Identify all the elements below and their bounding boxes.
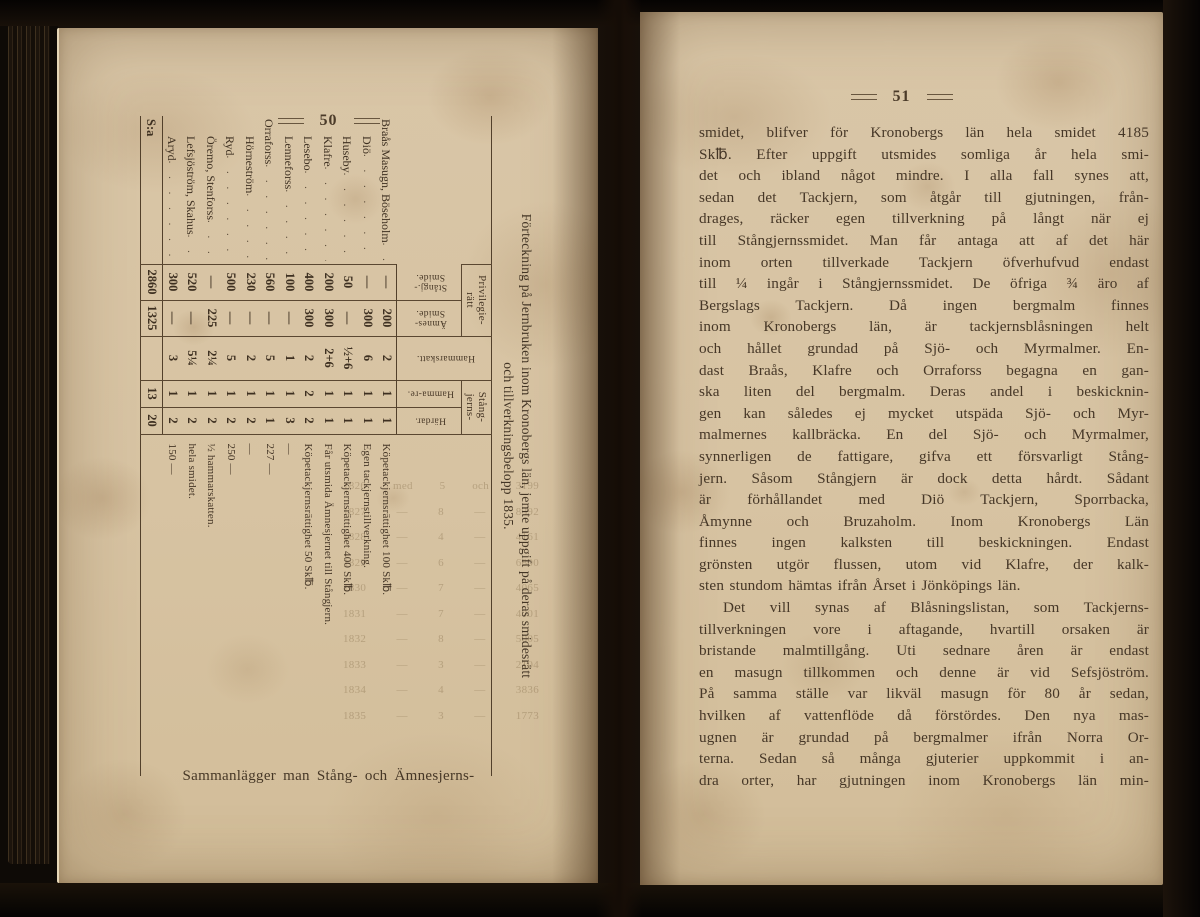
cell-skatt [141,336,163,380]
cell-note: Köpetackjernsrättighet 400 Sk℔. [338,434,358,776]
cell-hammare: 1 [163,380,183,407]
cell-note: 250 — [221,434,241,776]
text-line: det och ibland något mindre. I alla fall… [699,165,1149,187]
cell-hardar: 2 [221,407,241,434]
cell-stangj: 400 [299,264,319,300]
cell-hardar: 1 [358,407,378,434]
table-row: Klafre2003002+611Får utsmida Ämnesjernet… [319,116,339,776]
cell-note: Köpetackjernsrättighet 100 Sk℔. [377,434,397,776]
dot-leader [185,235,198,261]
cell-skatt: 5 [221,336,241,380]
cell-hardar: 1 [377,407,397,434]
cell-note: ½ hammarskatten. [202,434,222,776]
text-line: dra orter, har gjutningen inom Kronoberg… [699,770,1149,792]
dot-leader [283,189,296,260]
dash-ornament-icon [851,94,877,100]
cell-hardar: 2 [182,407,202,434]
cell-note: Köpetackjernsrättighet 50 Sk℔. [299,434,319,776]
dash-ornament-icon [927,94,953,100]
right-page: 51 smidet, blifver för Kronobergs län he… [640,12,1163,885]
body-text: smidet, blifver för Kronobergs län hela … [699,122,1149,791]
text-line: På samma ställe var likväl masugn för 80… [699,683,1149,705]
cell-hardar: 2 [163,407,183,434]
cell-hammare: 1 [260,380,280,407]
dot-leader [322,167,335,261]
privilege-group-header: Privilegie-rätt [462,264,492,336]
stangjerns-group-header: Stång-jerns- [462,380,492,434]
cell-note [141,434,163,776]
cell-name: Huseby [338,116,358,264]
cell-hammare: 1 [338,380,358,407]
table-row: Lesebo400300222Köpetackjernsrättighet 50… [299,116,319,776]
cell-note: 227 — [260,434,280,776]
text-line: inom Kronobergs län, är tackjernsblåsnin… [699,316,1149,338]
text-line: Sk℔. Efter uppgift utsmides somliga år h… [699,144,1149,166]
cell-hardar: 1 [338,407,358,434]
dot-leader [302,171,315,261]
table-row: Lenneforss100—113— [280,116,300,776]
scan-background-right [1163,0,1200,917]
cell-hardar: 20 [141,407,163,434]
cell-skatt: ½+6 [338,336,358,380]
cell-amnes: — [163,300,183,336]
cell-hammare: 1 [319,380,339,407]
cell-amnes: — [221,300,241,336]
text-line: inom orten tillverkade Tackjern öfverhuf… [699,252,1149,274]
cell-hardar: 2 [241,407,261,434]
cell-skatt: 2 [377,336,397,380]
table-title-line2: och tillverkningsbelopp 1835. [499,116,517,776]
cell-amnes: — [260,300,280,336]
cell-hammare: 1 [202,380,222,407]
dot-leader [244,193,257,260]
text-line: ugnen är grundad på bergmalmer ifrån Nor… [699,727,1149,749]
text-line: sedan det Tackjern, som åtgår till gjutn… [699,187,1149,209]
text-line: Åmynne och Bruzaholm. Inom Kronobergs Lä… [699,511,1149,533]
table-row: Orraforss560—511227 — [260,116,280,776]
cell-hammare: 13 [141,380,163,407]
cell-name: Öremo, Stenforss [202,116,222,264]
table-row: Diö—300611Egen tackjernstillverkning. [358,116,378,776]
cell-stangj: 520 [182,264,202,300]
cell-hammare: 1 [182,380,202,407]
cell-hammare: 1 [358,380,378,407]
text-line: ska liten del bergmalm. Deras andel i be… [699,381,1149,403]
table-row: Hörneström230—212— [241,116,261,776]
cell-skatt: 6 [358,336,378,380]
cell-hammare: 1 [221,380,241,407]
iron-works-table-inner: Förteckning på Jernbruken inom Kronoberg… [133,116,537,776]
dot-leader [166,161,179,261]
cell-name: Klafre [319,116,339,264]
name-column-header [397,116,492,264]
cell-skatt: 5¼ [182,336,202,380]
dot-leader [361,154,374,261]
cell-skatt: 1 [280,336,300,380]
text-line: synnerligen de fattigare, gifva ett förs… [699,446,1149,468]
paragraph-2: Det vill synas af Blåsningslistan, som T… [699,597,1149,791]
cell-amnes: 225 [202,300,222,336]
cell-hardar: 2 [299,407,319,434]
cell-skatt: 2 [299,336,319,380]
cell-stangj: — [358,264,378,300]
cell-amnes: 1325 [141,300,163,336]
cell-note: 150 — [163,434,183,776]
cell-stangj: — [377,264,397,300]
cell-name: Braås Masugn, Böseholm [377,116,397,264]
cell-name: Hörneström [241,116,261,264]
text-line: en masugn tillkommen och denne är vid Se… [699,662,1149,684]
amnes-smide-header: Ämnes-Smide. [397,300,462,336]
dot-leader [224,156,237,261]
cell-amnes: — [241,300,261,336]
text-line: terna. Sedan så många gjuterier uppkommi… [699,748,1149,770]
text-line: och hållet grundad på Sjö- och Myrmalmer… [699,338,1149,360]
cell-stangj: — [202,264,222,300]
cell-skatt: 2 [241,336,261,380]
cell-note: Får utsmida Ämnesjernet till Stångjern. [319,434,339,776]
cell-note: Egen tackjernstillverkning. [358,434,378,776]
table-row: Aryd300—312150 — [163,116,183,776]
cell-hammare: 2 [299,380,319,407]
hammarskatt-column-header: Hammarskatt. [397,336,492,380]
cell-amnes: — [338,300,358,336]
book-fore-edge [0,0,58,917]
dot-leader [380,243,393,261]
text-line: Bergslags Tackjern. Då ingen bergmalm fi… [699,295,1149,317]
stangj-smide-header: Stångj.-Smide. [397,264,462,300]
hardar-header: Härdar. [397,407,462,434]
cell-hammare: 1 [280,380,300,407]
book-gutter [596,0,642,917]
paragraph-1: smidet, blifver för Kronobergs län hela … [699,122,1149,597]
iron-works-table: Privilegie-rätt Hammarskatt. Stång-jerns… [140,116,492,776]
cell-name: Lesebo [299,116,319,264]
table-row: Öremo, Stenforss—2252¼12½ hammarskatten. [202,116,222,776]
cell-hammare: 1 [241,380,261,407]
cell-amnes: 300 [299,300,319,336]
cell-amnes: — [182,300,202,336]
text-line: smidet, blifver för Kronobergs län hela … [699,122,1149,144]
table-row: Huseby50—½+611Köpetackjernsrättighet 400… [338,116,358,776]
text-line: Det vill synas af Blåsningslistan, som T… [699,597,1149,619]
table-title: Förteckning på Jernbruken inom Kronoberg… [499,116,535,776]
cell-note: hela smidet. [182,434,202,776]
cell-stangj: 500 [221,264,241,300]
dot-leader [263,164,276,260]
text-line: är förhållandet med Diö Tackjern, Sporrb… [699,489,1149,511]
cell-amnes: 200 [377,300,397,336]
cell-skatt: 2+6 [319,336,339,380]
table-row: Lefsjöström, Skahus520—5¼12hela smidet. [182,116,202,776]
text-line: gen kan således ej mycket utspäda Sjö- o… [699,403,1149,425]
cell-amnes: 300 [358,300,378,336]
cell-stangj: 100 [280,264,300,300]
cell-name: Ryd [221,116,241,264]
text-line: bristande malmtillgång. Uti sednare åren… [699,640,1149,662]
text-line: drages, räcker egen tillverkning på lång… [699,208,1149,230]
text-line: grönsten utgör flussen, utom vid Klafre,… [699,554,1149,576]
table-row: Ryd500—512250 — [221,116,241,776]
cell-name: Lefsjöström, Skahus [182,116,202,264]
text-line: malmernes kallbräcka. En del Sjö- och My… [699,424,1149,446]
dot-leader [205,220,218,261]
right-page-header: 51 [640,88,1163,106]
cell-name: S:a [141,116,163,264]
cell-name: Lenneforss [280,116,300,264]
text-line: till ¼ ingår i Stångjernssmidet. De öfri… [699,273,1149,295]
text-line: hvilken af vattenflöde då förstördes. De… [699,705,1149,727]
cell-stangj: 560 [260,264,280,300]
text-line: till Stångjernssmidet. Man får antaga at… [699,230,1149,252]
table-row: Braås Masugn, Böseholm—200211Köpetackjer… [377,116,397,776]
rotated-table-block: Förteckning på Jernbruken inom Kronoberg… [133,116,537,776]
cell-hardar: 1 [260,407,280,434]
text-line: sten stundom hämtas ifrån Årset i Jönköp… [699,575,1149,597]
cell-note: — [241,434,261,776]
notes-column-header [397,434,492,776]
text-line: jern. Såsom Stångjern är dock detta hård… [699,468,1149,490]
cell-stangj: 200 [319,264,339,300]
page-number: 51 [893,88,911,106]
left-page: 50 1826 med 5 och 31991827 — 8 — 8392182… [57,28,598,883]
cell-skatt: 2¼ [202,336,222,380]
cell-amnes: — [280,300,300,336]
cell-name: Orraforss [260,116,280,264]
cell-skatt: 5 [260,336,280,380]
cell-amnes: 300 [319,300,339,336]
book-scan: 50 1826 med 5 och 31991827 — 8 — 8392182… [0,0,1200,917]
text-line: finnes ingen kalksten till beskickningen… [699,532,1149,554]
table-title-line1: Förteckning på Jernbruken inom Kronoberg… [517,116,535,776]
cell-stangj: 230 [241,264,261,300]
cell-hammare: 1 [377,380,397,407]
cell-note: — [280,434,300,776]
cell-skatt: 3 [163,336,183,380]
dot-leader [341,173,354,261]
hammare-header: Hamma-re. [397,380,462,407]
cell-stangj: 300 [163,264,183,300]
cell-name: Diö [358,116,378,264]
cell-hardar: 2 [202,407,222,434]
cell-stangj: 2860 [141,264,163,300]
text-line: dast Braås, Klafre och Orraforss begagna… [699,360,1149,382]
cell-hardar: 3 [280,407,300,434]
cell-hardar: 1 [319,407,339,434]
text-line: tillverkningen vore i aftagande, hvartil… [699,619,1149,641]
cell-name: Aryd [163,116,183,264]
cell-stangj: 50 [338,264,358,300]
table-row: S:a286013251320 [141,116,163,776]
